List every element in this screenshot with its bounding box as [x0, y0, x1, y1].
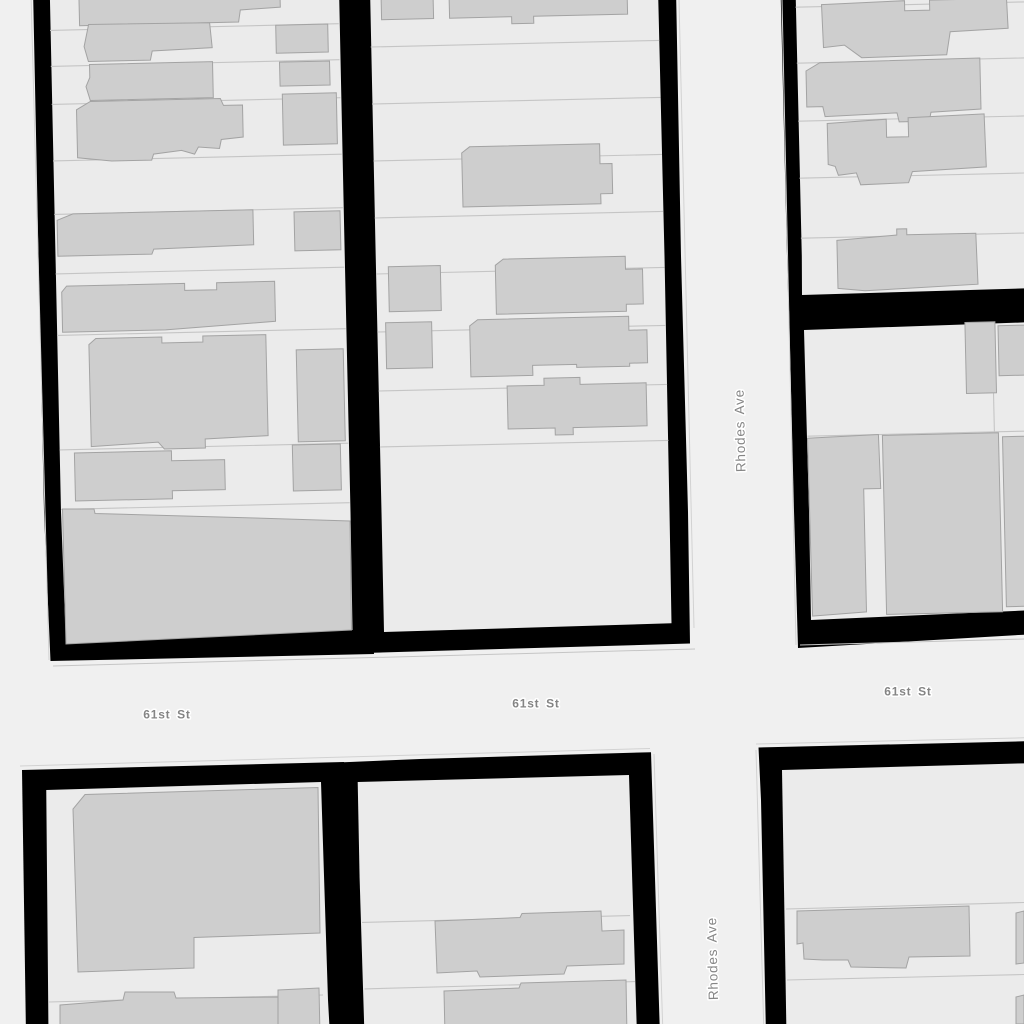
svg-text:Rhodes Ave: Rhodes Ave	[704, 917, 721, 1000]
svg-text:61st St: 61st St	[512, 697, 559, 711]
svg-text:61st St: 61st St	[143, 708, 190, 722]
svg-text:Rhodes Ave: Rhodes Ave	[732, 389, 749, 472]
svg-text:61st St: 61st St	[884, 685, 931, 699]
